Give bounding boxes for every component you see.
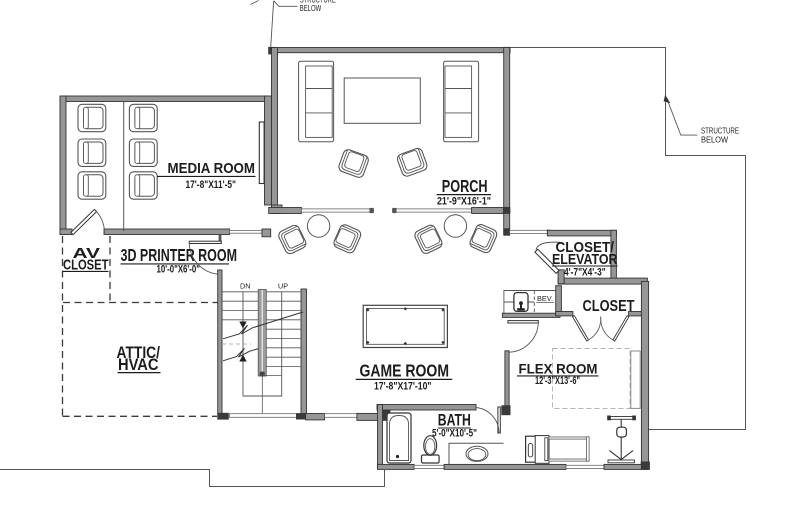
svg-text:PORCH: PORCH (442, 176, 488, 196)
svg-text:BEV.: BEV. (537, 296, 553, 303)
svg-text:HVAC: HVAC (118, 355, 159, 374)
svg-text:21'-9"X16'-1": 21'-9"X16'-1" (437, 196, 491, 208)
svg-text:BELOW: BELOW (300, 4, 322, 13)
svg-text:17'-8"X17'-10": 17'-8"X17'-10" (374, 380, 432, 392)
svg-text:BELOW: BELOW (701, 135, 728, 145)
svg-text:12'-3"X13'-6": 12'-3"X13'-6" (535, 375, 580, 387)
svg-text:UP: UP (278, 284, 288, 291)
svg-text:17'-8"X11'-5": 17'-8"X11'-5" (186, 179, 237, 191)
svg-text:10'-0"X6'-0": 10'-0"X6'-0" (157, 264, 201, 276)
svg-text:DN: DN (240, 284, 251, 291)
svg-text:4'-7"X4'-3": 4'-7"X4'-3" (564, 267, 606, 279)
svg-text:3D PRINTER ROOM: 3D PRINTER ROOM (121, 245, 238, 265)
svg-text:5'-0"X10'-5": 5'-0"X10'-5" (432, 427, 477, 439)
svg-text:ELEVATOR: ELEVATOR (552, 252, 618, 268)
svg-text:MEDIA ROOM: MEDIA ROOM (168, 161, 256, 177)
svg-text:GAME ROOM: GAME ROOM (360, 361, 450, 381)
svg-text:CLOSET: CLOSET (583, 298, 635, 315)
